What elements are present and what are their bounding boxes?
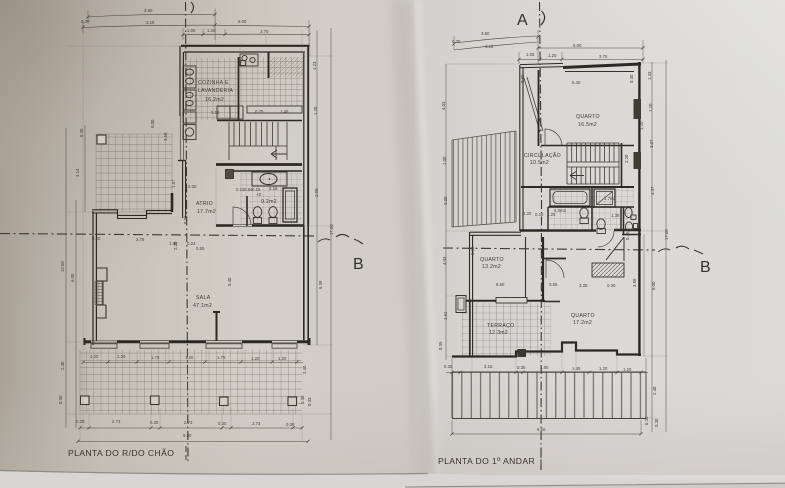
svg-text:4.03: 4.03 — [441, 101, 446, 110]
svg-text:1.20: 1.20 — [548, 53, 557, 58]
svg-text:0.45: 0.45 — [625, 231, 630, 240]
svg-text:COZINHA E: COZINHA E — [198, 80, 229, 86]
svg-text:47.1m2: 47.1m2 — [193, 303, 212, 309]
svg-text:3.07: 3.07 — [649, 139, 654, 148]
svg-text:16.2m2: 16.2m2 — [205, 97, 224, 103]
svg-text:4.0m2: 4.0m2 — [554, 208, 567, 213]
svg-text:2.40: 2.40 — [60, 361, 65, 370]
svg-text:0.24: 0.24 — [187, 241, 196, 246]
svg-text:3.56: 3.56 — [632, 278, 637, 287]
svg-text:1.45: 1.45 — [572, 366, 581, 371]
svg-text:1.20: 1.20 — [207, 28, 216, 33]
svg-text:1.35: 1.35 — [611, 213, 620, 218]
svg-text:1.33: 1.33 — [647, 71, 652, 80]
svg-text:3.00: 3.00 — [443, 196, 448, 205]
svg-text:1.20: 1.20 — [90, 354, 99, 359]
svg-text:3.15: 3.15 — [485, 44, 494, 49]
svg-text:8.00: 8.00 — [150, 119, 155, 128]
svg-text:12.50: 12.50 — [60, 261, 65, 272]
svg-text:5.40: 5.40 — [572, 80, 581, 85]
svg-text:3.75: 3.75 — [599, 54, 608, 59]
svg-text:ATRIO: ATRIO — [196, 201, 213, 207]
svg-text:0.35: 0.35 — [517, 365, 526, 370]
svg-text:1.20: 1.20 — [278, 356, 287, 361]
svg-text:3.14: 3.14 — [75, 168, 80, 177]
svg-text:6.00: 6.00 — [573, 43, 582, 48]
svg-text:17.7m2: 17.7m2 — [197, 209, 216, 215]
svg-text:0.30: 0.30 — [286, 422, 295, 427]
svg-text:2.18: 2.18 — [269, 186, 278, 191]
svg-text:0.75: 0.75 — [255, 109, 264, 114]
svg-text:3.75: 3.75 — [260, 29, 269, 34]
svg-text:1.00: 1.00 — [442, 156, 447, 165]
svg-text:0.30: 0.30 — [629, 74, 634, 83]
svg-text:1.20: 1.20 — [251, 356, 260, 361]
svg-text:0.30: 0.30 — [58, 395, 63, 404]
svg-text:0.30: 0.30 — [654, 418, 659, 427]
svg-text:0.30: 0.30 — [452, 39, 461, 44]
svg-text:1.20: 1.20 — [117, 354, 126, 359]
svg-text:12.3m2: 12.3m2 — [489, 330, 508, 336]
svg-text:17.00: 17.00 — [329, 224, 334, 235]
svg-text:3.80: 3.80 — [144, 8, 153, 13]
svg-text:0.30: 0.30 — [607, 283, 616, 288]
svg-text:0.33: 0.33 — [307, 397, 312, 406]
svg-text:0.30: 0.30 — [300, 395, 305, 404]
svg-text:3.18: 3.18 — [211, 110, 220, 115]
svg-text:6.00: 6.00 — [651, 281, 656, 290]
svg-text:2.73: 2.73 — [112, 419, 121, 424]
svg-text:0.30: 0.30 — [520, 74, 525, 83]
svg-text:1.75: 1.75 — [151, 355, 160, 360]
svg-text:2.88: 2.88 — [470, 246, 475, 255]
svg-text:17.2m2: 17.2m2 — [573, 320, 592, 326]
svg-text:0.55: 0.55 — [196, 246, 205, 251]
svg-text:0.30: 0.30 — [79, 128, 84, 137]
svg-text:9.50: 9.50 — [537, 427, 546, 432]
svg-text:0.30: 0.30 — [76, 419, 85, 424]
svg-text:1.20: 1.20 — [639, 121, 644, 130]
svg-text:QUARTO: QUARTO — [571, 313, 595, 319]
svg-text:1.62: 1.62 — [443, 311, 448, 320]
svg-text:6.39: 6.39 — [318, 280, 323, 289]
svg-text:1.20: 1.20 — [648, 103, 653, 112]
svg-text:QUARTO: QUARTO — [480, 257, 504, 263]
svg-text:+S: +S — [256, 192, 262, 197]
svg-text:3.98: 3.98 — [314, 188, 319, 197]
svg-text:1.75: 1.75 — [217, 355, 226, 360]
svg-text:0.30: 0.30 — [150, 420, 159, 425]
svg-text:6.00: 6.00 — [238, 19, 247, 24]
svg-text:3.15: 3.15 — [484, 364, 493, 369]
svg-text:2.20: 2.20 — [624, 154, 629, 163]
svg-text:0.16: 0.16 — [535, 212, 544, 217]
svg-text:4.37: 4.37 — [650, 186, 655, 195]
svg-text:3.15: 3.15 — [146, 20, 155, 25]
svg-text:1.20: 1.20 — [523, 211, 532, 216]
svg-text:0.30: 0.30 — [644, 416, 649, 425]
svg-text:3.35: 3.35 — [579, 283, 588, 288]
svg-text:1.05: 1.05 — [187, 28, 196, 33]
svg-text:5.50: 5.50 — [496, 282, 505, 287]
svg-text:0.35: 0.35 — [444, 364, 453, 369]
svg-text:3.58: 3.58 — [163, 132, 168, 141]
svg-text:16.5m2: 16.5m2 — [578, 122, 597, 128]
svg-text:17.00: 17.00 — [664, 229, 669, 240]
svg-text:10.5m2: 10.5m2 — [530, 160, 549, 166]
svg-text:1.45: 1.45 — [280, 109, 289, 114]
svg-text:0.35: 0.35 — [438, 341, 443, 350]
svg-text:B: B — [353, 256, 364, 273]
svg-text:1.05: 1.05 — [526, 52, 535, 57]
svg-text:3.50: 3.50 — [481, 31, 490, 36]
svg-text:QUARTO: QUARTO — [576, 114, 600, 120]
svg-text:B: B — [700, 259, 711, 276]
svg-text:3.76: 3.76 — [136, 237, 145, 242]
svg-text:A: A — [517, 12, 528, 29]
svg-text:6.00: 6.00 — [70, 273, 75, 282]
svg-text:PLANTA DO R/DO CHÃO: PLANTA DO R/DO CHÃO — [68, 448, 174, 458]
svg-text:0.30: 0.30 — [81, 19, 90, 24]
svg-text:0.30: 0.30 — [92, 236, 101, 241]
svg-text:LAVANDERIA: LAVANDERIA — [198, 88, 233, 94]
svg-text:2.40: 2.40 — [302, 365, 307, 374]
svg-text:PLANTA DO 1º ANDAR: PLANTA DO 1º ANDAR — [438, 456, 535, 466]
svg-text:1.20: 1.20 — [185, 355, 194, 360]
svg-text:0.86: 0.86 — [183, 215, 188, 224]
svg-text:1.57: 1.57 — [171, 179, 176, 188]
svg-text:1.20: 1.20 — [623, 367, 632, 372]
svg-text:0.55: 0.55 — [549, 282, 558, 287]
svg-text:1.20: 1.20 — [313, 106, 318, 115]
svg-text:SALA: SALA — [196, 295, 211, 301]
svg-text:1.20: 1.20 — [599, 366, 608, 371]
svg-text:9.80: 9.80 — [183, 433, 192, 438]
svg-text:1.23: 1.23 — [312, 61, 317, 70]
svg-text:TERRAÇO: TERRAÇO — [487, 323, 514, 329]
svg-text:1.80: 1.80 — [540, 365, 549, 370]
svg-text:2.40: 2.40 — [652, 386, 657, 395]
svg-text:2.00: 2.00 — [188, 184, 197, 189]
svg-text:9.2m2: 9.2m2 — [261, 199, 277, 205]
svg-text:2.73: 2.73 — [184, 420, 193, 425]
svg-text:2.20: 2.20 — [173, 241, 178, 250]
svg-text:0.30: 0.30 — [218, 421, 227, 426]
svg-text:2.73: 2.73 — [252, 421, 261, 426]
svg-text:CIRCULAÇÃO: CIRCULAÇÃO — [524, 152, 561, 159]
svg-text:5.40: 5.40 — [227, 277, 232, 286]
svg-text:4.03: 4.03 — [442, 256, 447, 265]
svg-text:1.7m2: 1.7m2 — [604, 196, 617, 201]
svg-text:13.2m2: 13.2m2 — [482, 264, 501, 270]
